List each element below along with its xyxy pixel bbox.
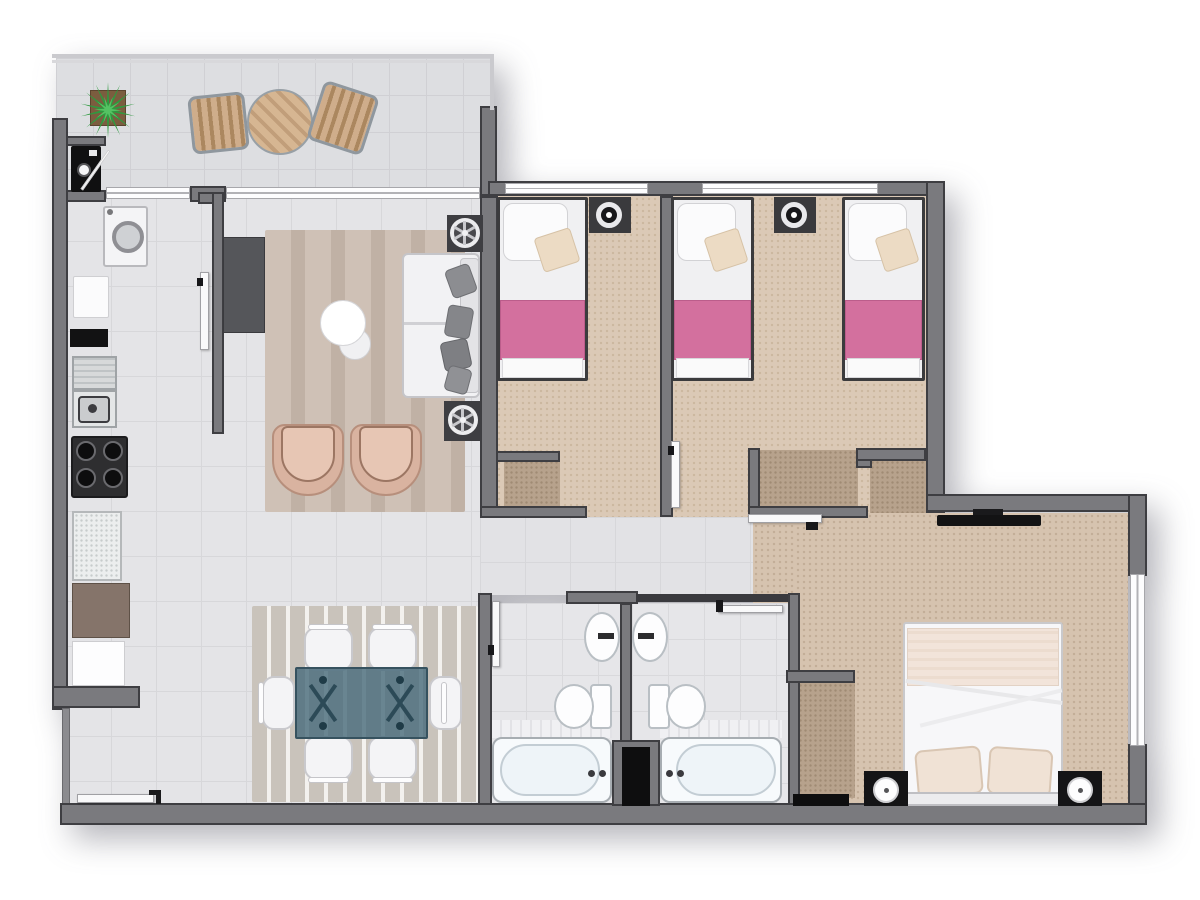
bed2-blanket xyxy=(674,300,751,360)
balcony-railing-inner xyxy=(52,60,494,63)
toilet1-bowl xyxy=(554,684,594,729)
coffee-table-large xyxy=(320,300,366,346)
stove-burner-4 xyxy=(103,468,123,488)
bathtub1-faucet-b xyxy=(599,770,606,777)
kitchen-return-wall xyxy=(52,686,140,708)
floor-plan-screenshot xyxy=(0,0,1200,900)
master-closet-floor xyxy=(870,460,926,513)
bed1-foot-fold xyxy=(502,358,583,378)
fridge xyxy=(72,511,122,581)
bathroom1-door-leaf xyxy=(492,601,500,667)
dining-chair-left-back xyxy=(258,682,264,724)
dining-chair-bottom-1-back xyxy=(308,777,349,783)
bedroom2-closet-floor xyxy=(758,450,858,508)
bed3-blanket xyxy=(845,300,922,360)
bed2-foot-fold xyxy=(676,358,749,378)
bathtub2-basin xyxy=(676,744,776,796)
kitchen-door-handle xyxy=(197,278,203,286)
dining-table-leg-2 xyxy=(319,722,327,730)
armchair-2-seat xyxy=(359,426,413,482)
bedroom1-lamp-dot xyxy=(606,212,612,218)
exterior-wall-left xyxy=(52,118,68,710)
sink1-faucet xyxy=(598,633,614,639)
washing-machine-dial xyxy=(107,209,113,215)
master-lamp-left-dot xyxy=(884,788,889,793)
kitchen-counter-white xyxy=(72,641,125,686)
dining-chair-right-back xyxy=(441,682,447,724)
master-lamp-right-dot xyxy=(1078,788,1083,793)
dining-chair-top-2 xyxy=(368,627,417,671)
bathroom-divider-wall xyxy=(620,603,632,747)
boiler-niche-wall-top xyxy=(66,136,106,146)
master-tv xyxy=(937,515,1041,526)
dining-chair-bottom-2 xyxy=(368,736,417,780)
bedroom1-closet-wall xyxy=(496,451,560,462)
master-closet-top-wall xyxy=(856,448,926,461)
dining-table-leg-1 xyxy=(319,676,327,684)
dining-chair-top-1-back xyxy=(308,624,349,630)
balcony-chair-left xyxy=(187,91,250,155)
bathtub2-faucet-a xyxy=(666,770,673,777)
stove-burner-2 xyxy=(103,441,123,461)
bathtub1-faucet-a xyxy=(588,770,595,777)
living-divider-cap xyxy=(198,192,214,204)
dining-table-leg-3 xyxy=(396,676,404,684)
entry-door-leaf xyxy=(77,794,154,803)
washing-machine-door xyxy=(112,221,144,253)
master-right-wall-upper xyxy=(1128,494,1147,576)
master-window xyxy=(1130,574,1145,746)
kitchen-cabinet-brown xyxy=(72,583,130,638)
master-top-wall xyxy=(926,494,1147,512)
exterior-wall-right-upper xyxy=(926,181,945,513)
dining-chair-top-1 xyxy=(304,627,353,671)
dining-chair-bottom-1 xyxy=(304,736,353,780)
hallway-floor xyxy=(480,517,753,595)
bedroom1-window xyxy=(505,183,648,194)
speaker-top-dot xyxy=(462,230,468,236)
bathtub1-basin xyxy=(500,744,600,796)
tv-console xyxy=(223,237,265,333)
dining-table xyxy=(295,667,428,739)
master-headboard xyxy=(898,792,1068,806)
balcony-railing-corner xyxy=(490,54,494,110)
master-pillow-left xyxy=(914,745,984,799)
water-heater-vent xyxy=(89,150,97,156)
bathroom2-right-wall xyxy=(788,593,800,805)
bed3-foot-fold xyxy=(847,358,920,378)
dining-chair-bottom-2-back xyxy=(372,777,413,783)
sink2-faucet xyxy=(638,633,654,639)
speaker-bottom-dot xyxy=(460,417,466,423)
bathroom2-door-leaf xyxy=(718,605,783,613)
bathroom1-left-wall xyxy=(478,593,492,805)
bathroom1-door-handle xyxy=(488,645,494,655)
stove-burner-3 xyxy=(76,468,96,488)
master-wardrobe-front xyxy=(793,794,849,806)
bedroom2-window xyxy=(702,183,878,194)
kitchen-sink-faucet xyxy=(88,404,97,413)
dining-chair-left xyxy=(262,676,295,730)
armchair-1-seat xyxy=(281,426,335,482)
entry-door-handle-b xyxy=(156,790,161,804)
bed1-blanket xyxy=(500,300,585,360)
kitchen-counter-dark xyxy=(70,329,108,347)
exterior-wall-left-lower xyxy=(62,708,70,806)
balcony-table xyxy=(247,89,313,155)
dining-table-leg-4 xyxy=(396,722,404,730)
master-wardrobe-top-wall xyxy=(786,670,855,683)
stove-burner-1 xyxy=(76,441,96,461)
bathtub2-faucet-b xyxy=(677,770,684,777)
master-bed-blanket-band xyxy=(907,628,1059,686)
bedroom2-lamp-dot xyxy=(791,212,797,218)
balcony-railing-outer xyxy=(52,54,494,58)
master-wardrobe-floor xyxy=(793,683,855,798)
bedroom1-bottom-wall xyxy=(480,506,587,518)
bedroom2-door-handle xyxy=(668,446,674,455)
laundry-cabinet xyxy=(73,276,109,318)
dining-chair-top-2-back xyxy=(372,624,413,630)
balcony-sliding-window-right xyxy=(226,187,480,199)
sink-drainboard xyxy=(72,356,117,390)
apartment-floor-plan xyxy=(0,0,1200,900)
balcony-sliding-window-left xyxy=(106,187,190,199)
bathroom2-track-wall xyxy=(636,594,790,602)
bedroom1-closet-floor xyxy=(504,460,560,510)
bathroom2-door-handle xyxy=(716,600,723,612)
sofa-pillow-2 xyxy=(443,304,474,340)
exterior-wall-bottom xyxy=(60,803,1147,825)
toilet2-bowl xyxy=(666,684,706,729)
master-entry-floor xyxy=(753,517,795,603)
master-pillow-right xyxy=(986,746,1053,798)
bathroom-divider-duct xyxy=(622,747,650,806)
master-door-handle xyxy=(806,522,818,530)
